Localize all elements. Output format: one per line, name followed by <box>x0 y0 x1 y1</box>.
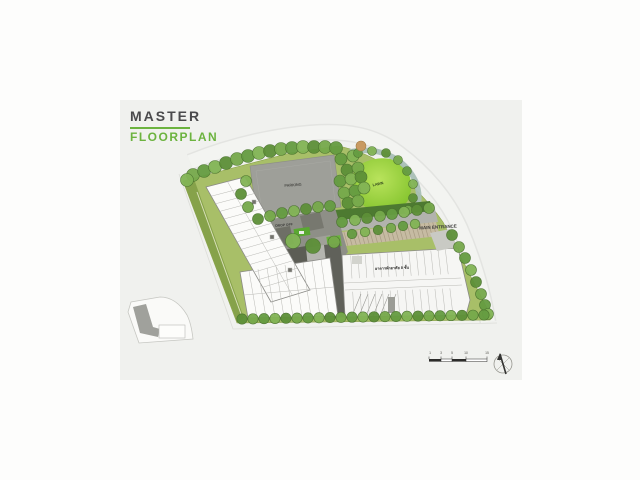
scale-tick: 3 <box>440 351 442 355</box>
plaza-pavilion <box>299 231 304 234</box>
page: { "page": { "title": "MASTER", "subtitle… <box>0 0 640 480</box>
scale-tick: 1 <box>429 351 431 355</box>
key-map <box>128 297 193 343</box>
page-subtitle: FLOORPLAN <box>130 131 218 144</box>
north-arrow-icon <box>494 353 512 374</box>
title-block: MASTER FLOORPLAN <box>130 109 218 145</box>
scale-tick: 15 <box>485 351 489 355</box>
building-label: อาคารพักอาศัย 8 ชั้น <box>375 264 409 271</box>
scale-bar <box>429 357 487 362</box>
accent-tree <box>356 141 366 151</box>
page-title: MASTER <box>130 109 218 124</box>
title-underline <box>130 127 190 129</box>
core <box>388 297 395 313</box>
lobby <box>352 256 362 264</box>
key-map-site <box>159 325 185 338</box>
scale-tick: 10 <box>464 351 468 355</box>
east-building <box>342 248 470 317</box>
floorplan-panel: MASTER FLOORPLAN <box>120 100 522 380</box>
scale-tick: 5 <box>451 351 453 355</box>
